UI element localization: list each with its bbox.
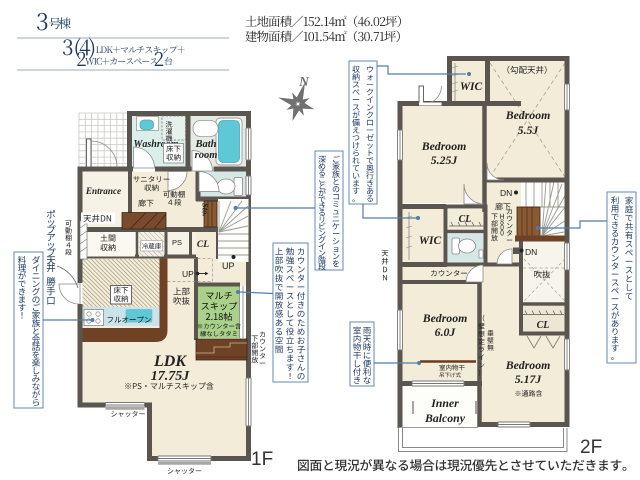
svg-text:5.5J: 5.5J bbox=[518, 123, 540, 137]
svg-text:Entrance: Entrance bbox=[85, 186, 121, 196]
svg-text:Bath: Bath bbox=[194, 139, 216, 150]
svg-text:5.25J: 5.25J bbox=[431, 153, 459, 167]
svg-text:17.75J: 17.75J bbox=[151, 369, 191, 384]
svg-text:UP: UP bbox=[182, 269, 194, 279]
svg-text:CL: CL bbox=[537, 320, 550, 331]
svg-text:6.0J: 6.0J bbox=[435, 325, 457, 339]
svg-text:Bedroom: Bedroom bbox=[505, 358, 551, 372]
svg-text:Inner: Inner bbox=[430, 396, 459, 410]
svg-text:room: room bbox=[195, 150, 218, 161]
svg-text:DN: DN bbox=[525, 247, 537, 257]
svg-text:DN: DN bbox=[500, 188, 512, 198]
svg-text:UP: UP bbox=[222, 261, 235, 271]
svg-text:N: N bbox=[298, 74, 310, 89]
svg-text:LDK: LDK bbox=[153, 353, 187, 370]
svg-text:WIC: WIC bbox=[419, 235, 442, 247]
svg-text:Bedroom: Bedroom bbox=[422, 311, 468, 325]
svg-text:PS: PS bbox=[172, 238, 182, 247]
svg-text:Bedroom: Bedroom bbox=[421, 139, 467, 153]
svg-text:2F: 2F bbox=[580, 437, 602, 458]
svg-text:WIC: WIC bbox=[460, 81, 483, 93]
svg-text:CL: CL bbox=[459, 214, 472, 225]
svg-text:CL: CL bbox=[197, 240, 209, 250]
svg-text:Balcony: Balcony bbox=[424, 411, 466, 425]
svg-text:Bedroom: Bedroom bbox=[505, 108, 551, 122]
svg-text:5.17J: 5.17J bbox=[515, 372, 543, 386]
svg-text:1F: 1F bbox=[251, 449, 273, 470]
svg-text:Sto.: Sto. bbox=[201, 203, 211, 216]
